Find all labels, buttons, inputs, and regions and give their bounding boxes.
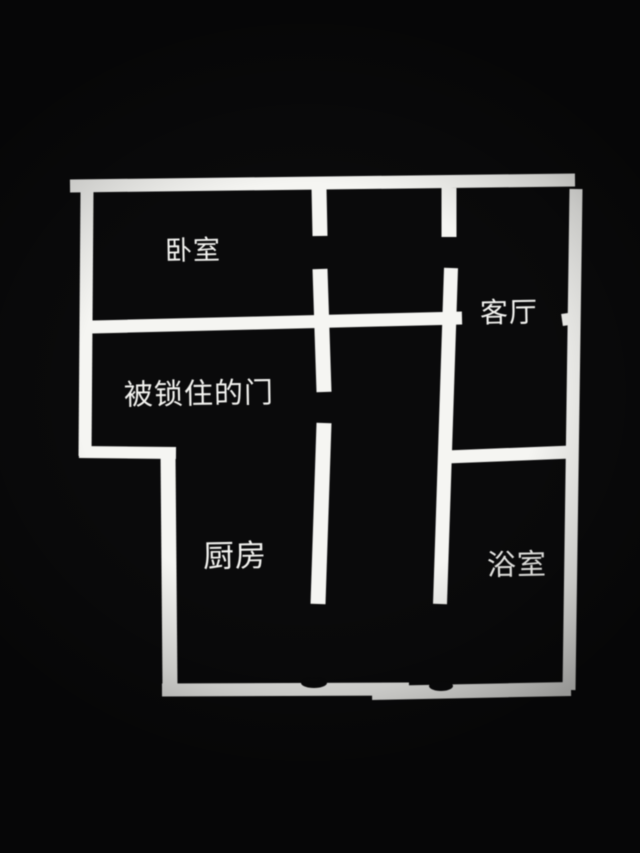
locked-room-south-wall [79,452,176,453]
room-label-bathroom: 浴室 [487,551,548,581]
room-label-locked-door: 被锁住的门 [124,379,274,411]
floor-plan-scene: 卧室 客厅 被锁住的门 厨房 浴室 [0,0,640,853]
bottom-wall-notch-right [429,681,453,691]
bottom-wall-notch-left [301,678,327,688]
bedroom-east-wall-mid [320,269,324,392]
floor-plan-layer: 卧室 客厅 被锁住的门 厨房 浴室 [0,0,640,853]
living-bath-divider-wall [446,452,572,457]
bottom-wall-right-segment [372,689,571,693]
bedroom-east-wall-upper [319,188,320,236]
bedroom-east-wall-lower [318,423,324,604]
room-label-kitchen: 厨房 [203,540,268,572]
room-label-living-room: 客厅 [480,298,538,327]
outer-wall-left [85,190,87,456]
room-label-bedroom: 卧室 [165,237,221,265]
bedroom-south-wall [92,318,462,327]
outer-wall-right [569,189,576,690]
outer-wall-top [70,180,575,186]
living-room-wall-stub [562,319,569,320]
floor-plan-walls [0,0,640,853]
kitchen-west-wall [168,453,170,688]
